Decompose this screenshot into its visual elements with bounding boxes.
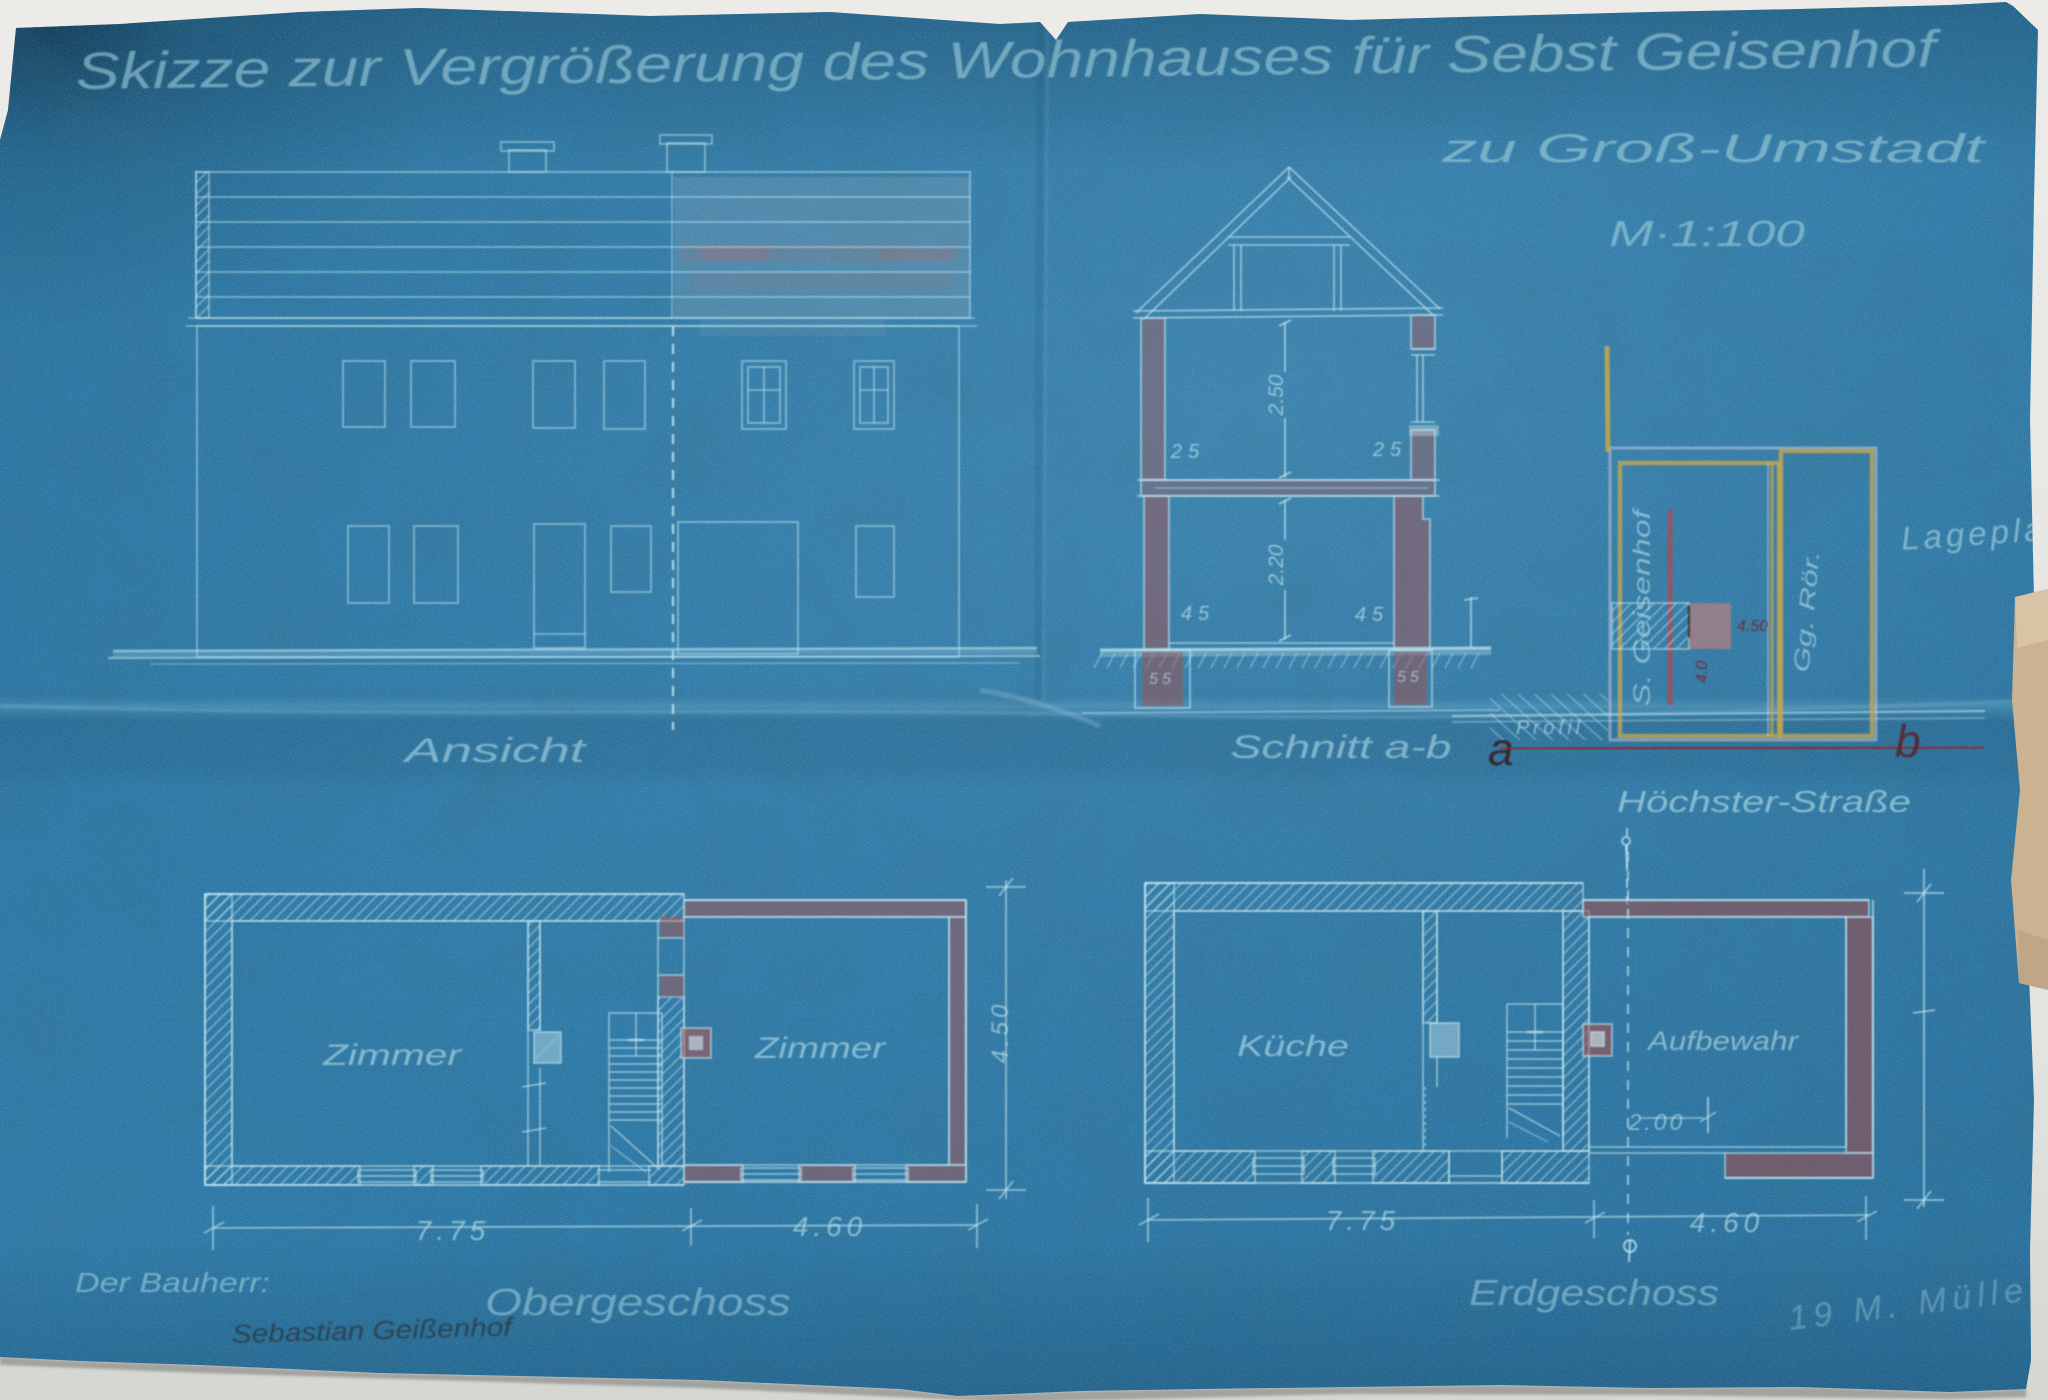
- svg-text:b: b: [1895, 715, 1921, 767]
- svg-text:2.50: 2.50: [1265, 374, 1288, 416]
- svg-text:4.50: 4.50: [1737, 618, 1768, 635]
- svg-text:45: 45: [1181, 603, 1215, 625]
- svg-text:S. Geisenhof: S. Geisenhof: [1629, 507, 1656, 706]
- svg-text:4.0: 4.0: [1694, 661, 1711, 683]
- svg-text:Höchster-Straße: Höchster-Straße: [1617, 784, 1911, 819]
- svg-text:4.60: 4.60: [793, 1211, 868, 1242]
- svg-text:Schnitt a-b: Schnitt a-b: [1231, 729, 1452, 765]
- svg-text:4.50: 4.50: [987, 1001, 1014, 1064]
- svg-text:Aufbewahr: Aufbewahr: [1646, 1026, 1799, 1056]
- svg-text:Der Bauherr:: Der Bauherr:: [75, 1267, 270, 1298]
- svg-text:7.75: 7.75: [416, 1215, 491, 1246]
- svg-text:Profil: Profil: [1516, 717, 1581, 739]
- svg-text:4.60: 4.60: [1690, 1207, 1765, 1238]
- svg-text:55: 55: [1149, 671, 1175, 688]
- svg-text:Zimmer: Zimmer: [754, 1032, 887, 1065]
- svg-text:55: 55: [1397, 669, 1423, 686]
- svg-text:45: 45: [1355, 604, 1389, 626]
- svg-text:7.75: 7.75: [1326, 1205, 1401, 1236]
- svg-text:M·1:100: M·1:100: [1609, 213, 1805, 254]
- svg-text:2.00: 2.00: [1628, 1109, 1686, 1135]
- svg-text:zu Groß-Umstadt: zu Groß-Umstadt: [1440, 127, 1987, 171]
- svg-text:Obergeschoss: Obergeschoss: [485, 1282, 791, 1324]
- svg-text:25: 25: [1170, 441, 1205, 463]
- svg-text:Erdgeschoss: Erdgeschoss: [1469, 1272, 1719, 1313]
- svg-text:2.20: 2.20: [1265, 544, 1288, 586]
- svg-text:Küche: Küche: [1237, 1030, 1349, 1063]
- svg-text:25: 25: [1372, 439, 1407, 461]
- svg-text:Ansicht: Ansicht: [402, 732, 588, 770]
- svg-text:Zimmer: Zimmer: [322, 1039, 463, 1072]
